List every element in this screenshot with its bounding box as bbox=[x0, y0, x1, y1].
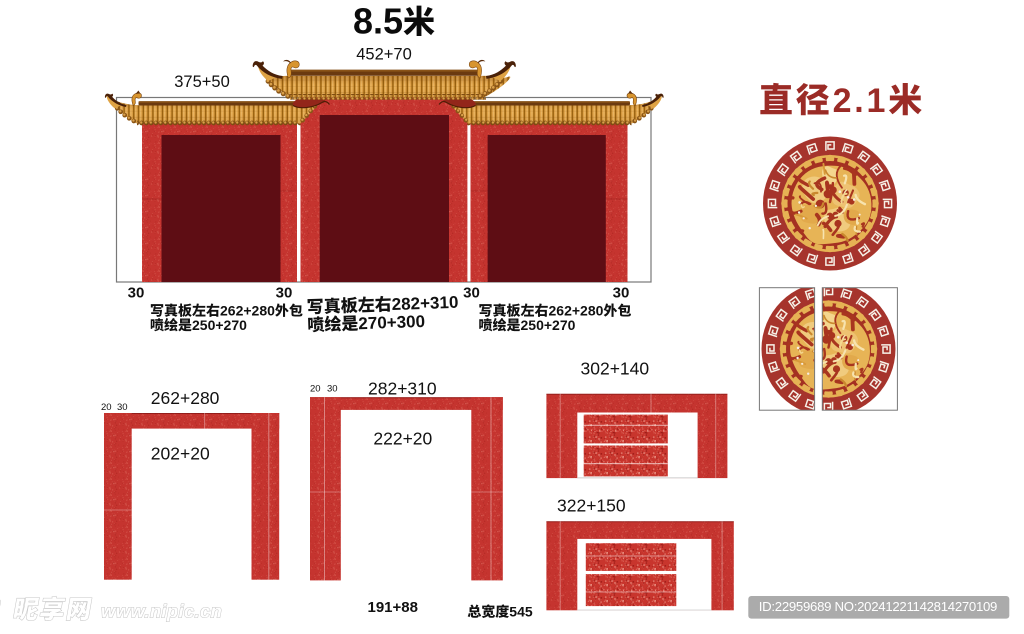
svg-text:302+140: 302+140 bbox=[581, 359, 650, 379]
svg-text:30: 30 bbox=[613, 285, 630, 302]
svg-text:250+270: 250+270 bbox=[192, 317, 247, 333]
svg-text:250+270: 250+270 bbox=[521, 317, 576, 333]
svg-text:322+150: 322+150 bbox=[557, 496, 626, 516]
svg-text:2.1: 2.1 bbox=[833, 82, 889, 120]
svg-text:262+280: 262+280 bbox=[151, 388, 220, 408]
svg-text:202+20: 202+20 bbox=[151, 444, 210, 464]
svg-text:452+70: 452+70 bbox=[356, 46, 412, 64]
svg-text:ID:22959689 NO:202412211428142: ID:22959689 NO:20241221142814270109 bbox=[759, 599, 998, 614]
svg-text:30: 30 bbox=[128, 285, 145, 302]
svg-text:282+310: 282+310 bbox=[391, 293, 458, 314]
svg-text:30: 30 bbox=[463, 285, 480, 302]
svg-text:n: n bbox=[0, 590, 1, 618]
svg-text:20: 20 bbox=[310, 384, 321, 395]
svg-text:20: 20 bbox=[101, 402, 112, 413]
svg-text:30: 30 bbox=[276, 285, 293, 302]
svg-text:545: 545 bbox=[509, 604, 533, 620]
svg-text:8.5: 8.5 bbox=[353, 1, 403, 42]
svg-text:282+310: 282+310 bbox=[368, 379, 437, 399]
svg-text:www.nipic.cn: www.nipic.cn bbox=[101, 601, 222, 622]
svg-text:30: 30 bbox=[117, 402, 128, 413]
svg-text:375+50: 375+50 bbox=[174, 73, 230, 91]
svg-text:270+300: 270+300 bbox=[358, 312, 425, 333]
svg-text:222+20: 222+20 bbox=[373, 429, 432, 449]
svg-text:30: 30 bbox=[327, 384, 338, 395]
svg-text:191+88: 191+88 bbox=[368, 599, 418, 616]
